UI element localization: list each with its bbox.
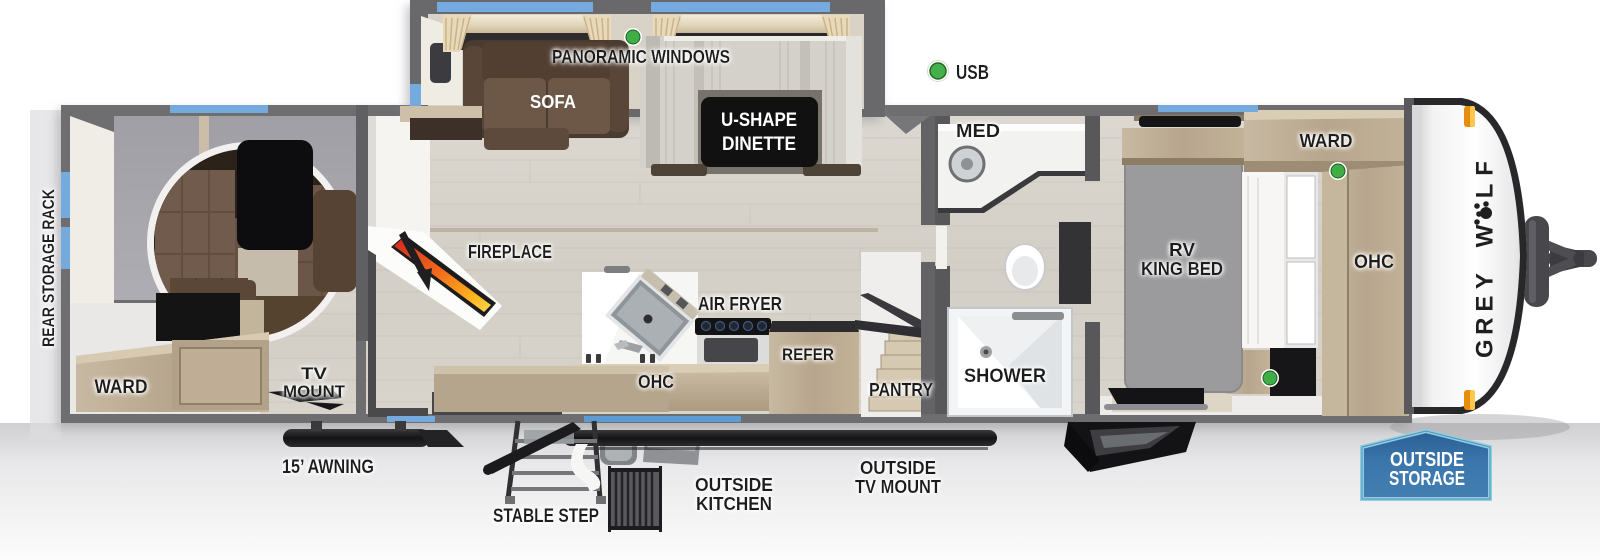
svg-text:R: R [1472,318,1499,335]
svg-text:PANORAMIC WINDOWS: PANORAMIC WINDOWS [552,47,730,67]
svg-text:SHOWER: SHOWER [964,366,1046,387]
svg-text:G: G [1472,339,1499,358]
svg-text:OHC: OHC [1354,252,1394,273]
svg-text:REAR STORAGE RACK: REAR STORAGE RACK [39,188,58,347]
svg-text:KITCHEN: KITCHEN [696,494,772,514]
svg-text:USB: USB [956,62,989,84]
svg-text:AIR FRYER: AIR FRYER [698,294,782,314]
svg-text:W: W [1472,224,1499,247]
svg-text:15’ AWNING: 15’ AWNING [282,457,374,478]
svg-text:STORAGE: STORAGE [1389,468,1465,490]
svg-text:KING BED: KING BED [1141,259,1223,279]
svg-text:SOFA: SOFA [530,92,576,112]
svg-text:Y: Y [1472,273,1499,289]
svg-text:MOUNT: MOUNT [283,382,346,401]
svg-text:DINETTE: DINETTE [722,134,796,155]
svg-text:FIREPLACE: FIREPLACE [468,242,552,262]
svg-text:TV: TV [301,364,328,383]
svg-text:STABLE STEP: STABLE STEP [493,506,599,527]
svg-text:MED: MED [956,121,1000,141]
svg-text:RV: RV [1169,240,1195,260]
svg-text:WARD: WARD [1300,131,1353,151]
svg-text:REFER: REFER [782,345,834,364]
svg-text:TV MOUNT: TV MOUNT [855,477,941,497]
svg-text:E: E [1472,296,1499,312]
svg-text:PANTRY: PANTRY [869,380,933,400]
svg-text:OUTSIDE: OUTSIDE [860,458,936,478]
svg-text:WARD: WARD [95,377,148,398]
svg-text:OHC: OHC [638,372,674,392]
svg-text:L: L [1472,184,1499,199]
svg-text:U-SHAPE: U-SHAPE [721,110,797,131]
svg-text:F: F [1472,161,1499,176]
svg-text:OUTSIDE: OUTSIDE [695,475,773,495]
